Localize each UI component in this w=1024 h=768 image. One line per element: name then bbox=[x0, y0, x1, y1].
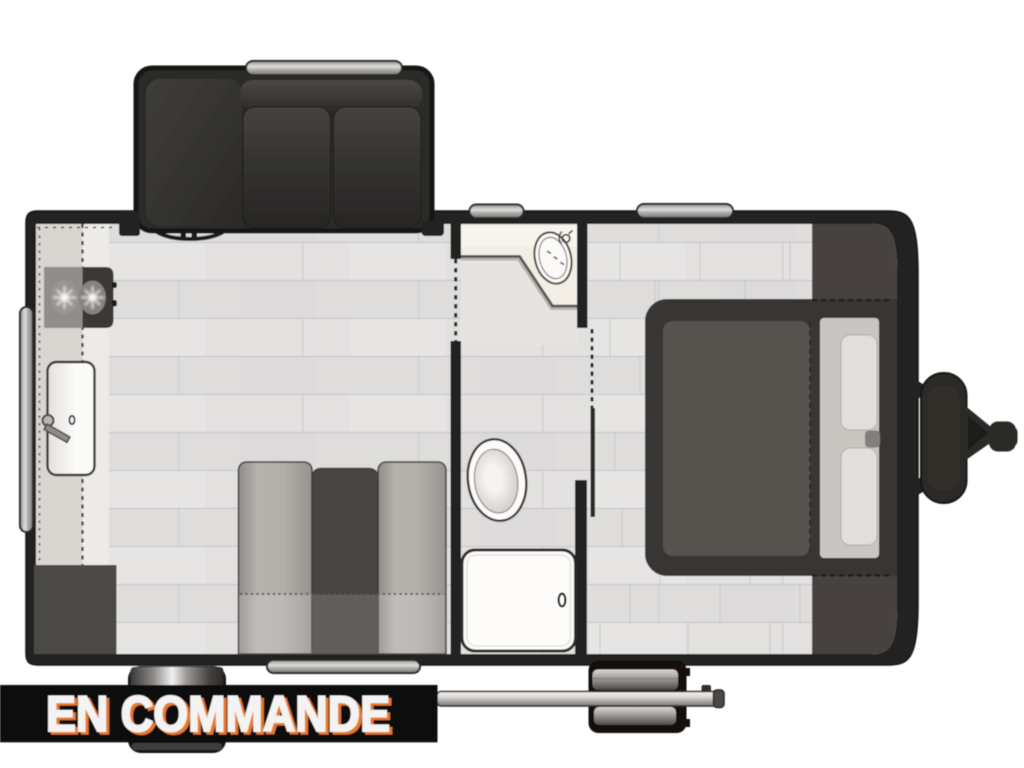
svg-text:EN COMMANDE: EN COMMANDE bbox=[46, 686, 390, 742]
